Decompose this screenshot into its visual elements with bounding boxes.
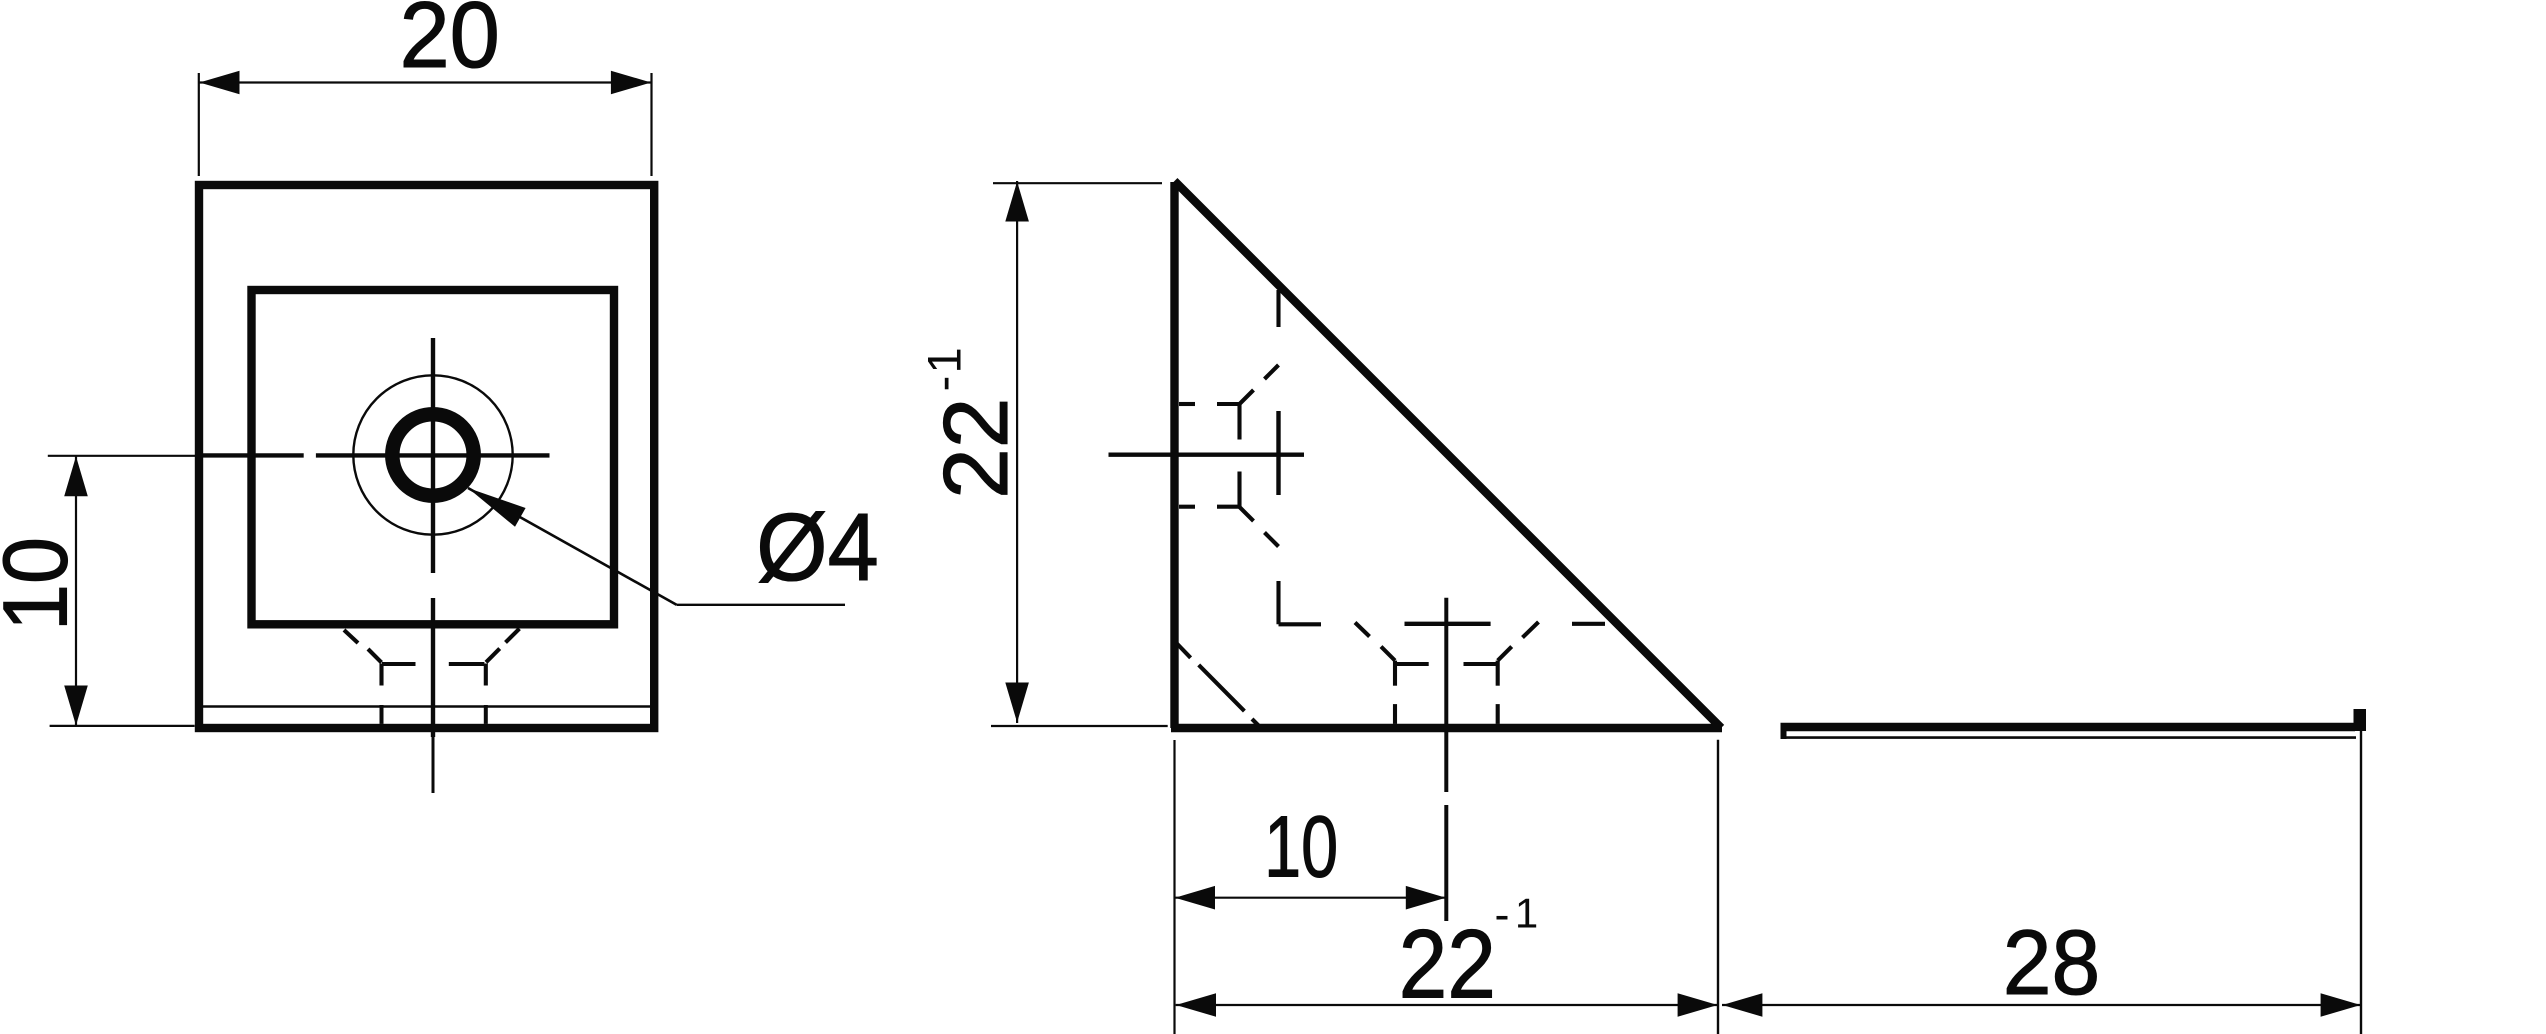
svg-text:10: 10 [0,537,87,631]
svg-text:-: - [1495,889,1510,940]
svg-text:1: 1 [1515,890,1538,937]
svg-text:22: 22 [1399,909,1496,1018]
svg-text:28: 28 [2003,912,2101,1014]
svg-text:10: 10 [1264,799,1338,896]
svg-text:1: 1 [918,347,971,373]
svg-text:20: 20 [399,0,500,87]
svg-text:-: - [916,376,969,392]
svg-text:22: 22 [926,398,1027,499]
svg-text:Ø4: Ø4 [756,494,879,601]
